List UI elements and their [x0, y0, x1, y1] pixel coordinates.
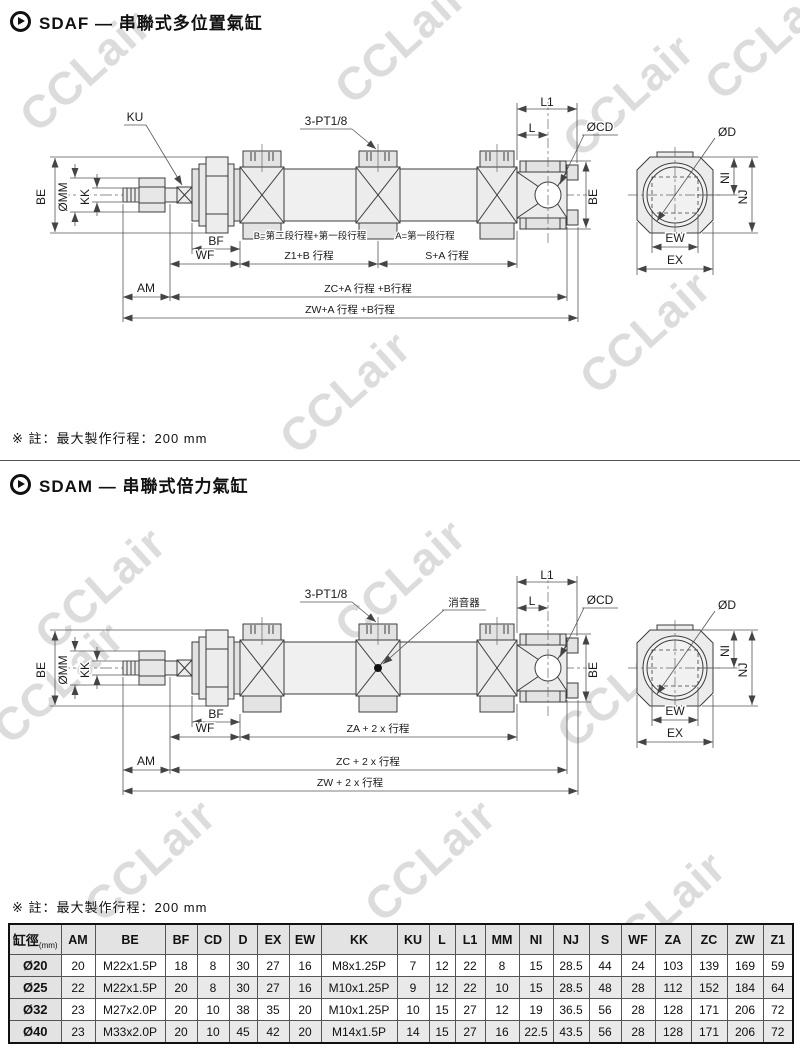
spec-cell: 139 [691, 955, 727, 977]
section-divider [0, 460, 800, 461]
section-bullet-icon [10, 474, 31, 495]
section1-note: ※ 註：最大製作行程：200 mm [12, 428, 207, 447]
dim-label-be-right: BE [586, 662, 600, 678]
col-header-nj: NJ [553, 924, 589, 955]
dim-label-mm: ØMM [56, 182, 70, 211]
dim-label-port: 3-PT1/8 [305, 114, 348, 128]
spec-cell: 43.5 [553, 1021, 589, 1044]
spec-cell: M22x1.5P [95, 977, 165, 999]
col-header-wf: WF [621, 924, 655, 955]
spec-cell: 27 [257, 955, 289, 977]
section2-note: ※ 註：最大製作行程：200 mm [12, 897, 207, 916]
col-header-za: ZA [655, 924, 691, 955]
spec-cell: 152 [691, 977, 727, 999]
spec-cell: 171 [691, 999, 727, 1021]
spec-cell: M33x2.0P [95, 1021, 165, 1044]
col-header-ew: EW [289, 924, 321, 955]
dim-label-z1b: Z1+B 行程 [284, 249, 334, 262]
spec-cell: 15 [429, 1021, 455, 1044]
spec-cell: 72 [763, 1021, 793, 1044]
dim-label-d: ØD [718, 598, 736, 612]
spec-cell: 24 [621, 955, 655, 977]
spec-cell: 10 [197, 999, 229, 1021]
spec-cell: 9 [397, 977, 429, 999]
dim-label-cd: ØCD [587, 593, 614, 607]
spec-cell: 16 [289, 955, 321, 977]
dim-label-l: L [529, 121, 536, 135]
spec-cell: 42 [257, 1021, 289, 1044]
dim-label-mm: ØMM [56, 655, 70, 684]
dim-label-wf: WF [196, 721, 215, 735]
col-header-zc: ZC [691, 924, 727, 955]
dim-label-nj: NJ [736, 190, 750, 205]
dim-label-ew: EW [665, 231, 685, 245]
spec-cell: 28 [621, 1021, 655, 1044]
section2-title-text: SDAM — 串聯式倍力氣缸 [39, 472, 249, 497]
spec-cell: M22x1.5P [95, 955, 165, 977]
col-header-ku: KU [397, 924, 429, 955]
spec-cell: 56 [589, 1021, 621, 1044]
spec-cell: 20 [165, 999, 197, 1021]
col-header-ni: NI [519, 924, 553, 955]
col-header-cd: CD [197, 924, 229, 955]
spec-cell: 15 [429, 999, 455, 1021]
spec-cell: 48 [589, 977, 621, 999]
dim-label-ku: KU [127, 110, 144, 124]
spec-cell: 23 [61, 1021, 95, 1044]
spec-cell: 22 [455, 977, 485, 999]
section2-title: SDAM — 串聯式倍力氣缸 [10, 472, 249, 497]
spec-cell: 23 [61, 999, 95, 1021]
section1-title-text: SDAF — 串聯式多位置氣缸 [39, 9, 263, 34]
col-header-bf: BF [165, 924, 197, 955]
stroke-note-a: A=第一段行程 [395, 230, 455, 242]
spec-cell: 59 [763, 955, 793, 977]
col-header-l1: L1 [455, 924, 485, 955]
col-header-l: L [429, 924, 455, 955]
spec-cell: 22.5 [519, 1021, 553, 1044]
spec-cell: 20 [289, 999, 321, 1021]
spec-cell: 14 [397, 1021, 429, 1044]
table-row: Ø2522M22x1.5P208302716M10x1.25P912221015… [9, 977, 793, 999]
spec-cell: 20 [165, 977, 197, 999]
spec-cell: 169 [727, 955, 763, 977]
spec-cell: 112 [655, 977, 691, 999]
watermark: CCLair [354, 787, 507, 932]
dim-label-be-right: BE [586, 189, 600, 205]
spec-cell: 45 [229, 1021, 257, 1044]
dim-label-zw: ZW+A 行程 +B行程 [305, 303, 395, 316]
spec-cell: 30 [229, 977, 257, 999]
spec-cell: 22 [455, 955, 485, 977]
spec-table: 缸徑(mm)AMBEBFCDDEXEWKKKULL1MMNINJSWFZAZCZ… [8, 923, 794, 1044]
dim-label-am: AM [137, 754, 155, 768]
spec-table-body: Ø2020M22x1.5P188302716M8x1.25P7122281528… [9, 955, 793, 1044]
spec-cell: 7 [397, 955, 429, 977]
spec-cell: 27 [455, 999, 485, 1021]
spec-cell: 15 [519, 955, 553, 977]
spec-cell: 8 [197, 977, 229, 999]
dim-label-cd: ØCD [587, 120, 614, 134]
sdam-diagram: 3-PT1/8 消音器 L1 L ØCD ØD BE ØMM KK BE NI … [0, 556, 800, 808]
spec-cell: 28 [621, 999, 655, 1021]
spec-cell: 72 [763, 999, 793, 1021]
spec-cell: 35 [257, 999, 289, 1021]
catalog-page: CCLair CCLair CCLair CCLair CCLair CCLai… [0, 0, 800, 1049]
dim-label-zc: ZC+A 行程 +B行程 [324, 282, 412, 295]
spec-cell: 44 [589, 955, 621, 977]
dim-label-za: ZA + 2 x 行程 [347, 722, 410, 735]
spec-cell: 16 [485, 1021, 519, 1044]
spec-table-header-row: 缸徑(mm)AMBEBFCDDEXEWKKKULL1MMNINJSWFZAZCZ… [9, 924, 793, 955]
dim-label-port: 3-PT1/8 [305, 587, 348, 601]
dim-label-ew: EW [665, 704, 685, 718]
spec-cell: M14x1.5P [321, 1021, 397, 1044]
dim-label-wf: WF [196, 248, 215, 262]
spec-cell: M8x1.25P [321, 955, 397, 977]
dim-label-zc: ZC + 2 x 行程 [336, 755, 400, 768]
section1-title: SDAF — 串聯式多位置氣缸 [10, 9, 263, 34]
table-row: Ø3223M27x2.0P2010383520M10x1.25P10152712… [9, 999, 793, 1021]
dim-label-be-left: BE [34, 189, 48, 205]
spec-cell: 20 [61, 955, 95, 977]
col-header-kk: KK [321, 924, 397, 955]
col-header-z1: Z1 [763, 924, 793, 955]
spec-cell: 27 [257, 977, 289, 999]
spec-cell: 28.5 [553, 955, 589, 977]
spec-cell: 20 [165, 1021, 197, 1044]
dim-label-ni: NI [718, 172, 732, 184]
spec-cell: 36.5 [553, 999, 589, 1021]
spec-cell: 28 [621, 977, 655, 999]
spec-cell: 12 [429, 955, 455, 977]
col-header-mm: MM [485, 924, 519, 955]
spec-cell: 19 [519, 999, 553, 1021]
spec-cell: M10x1.25P [321, 999, 397, 1021]
spec-cell: 20 [289, 1021, 321, 1044]
spec-cell: 10 [485, 977, 519, 999]
spec-cell: 8 [197, 955, 229, 977]
sdaf-diagram: KU 3-PT1/8 L1 L ØCD ØD BE ØMM KK BE NI N… [0, 88, 800, 340]
spec-cell: 15 [519, 977, 553, 999]
col-header-be: BE [95, 924, 165, 955]
col-header-dia: 缸徑(mm) [9, 924, 61, 955]
spec-cell: 28.5 [553, 977, 589, 999]
row-diameter: Ø25 [9, 977, 61, 999]
dim-label-am: AM [137, 281, 155, 295]
dim-label-bf: BF [208, 234, 223, 248]
spec-cell: M27x2.0P [95, 999, 165, 1021]
spec-cell: 12 [429, 977, 455, 999]
table-row: Ø2020M22x1.5P188302716M8x1.25P7122281528… [9, 955, 793, 977]
spec-cell: 10 [197, 1021, 229, 1044]
spec-cell: 8 [485, 955, 519, 977]
dim-label-l1: L1 [540, 568, 554, 582]
spec-cell: 128 [655, 999, 691, 1021]
spec-cell: 22 [61, 977, 95, 999]
row-diameter: Ø32 [9, 999, 61, 1021]
col-header-am: AM [61, 924, 95, 955]
spec-cell: 10 [397, 999, 429, 1021]
col-header-zw: ZW [727, 924, 763, 955]
dim-label-zw: ZW + 2 x 行程 [317, 776, 384, 789]
spec-cell: 38 [229, 999, 257, 1021]
table-row: Ø4023M33x2.0P2010454220M14x1.5P141527162… [9, 1021, 793, 1044]
dim-label-sa: S+A 行程 [425, 249, 469, 262]
spec-cell: 128 [655, 1021, 691, 1044]
dim-label-d: ØD [718, 125, 736, 139]
dim-label-kk: KK [78, 189, 92, 205]
spec-cell: 18 [165, 955, 197, 977]
dim-label-bf: BF [208, 707, 223, 721]
section-bullet-icon [10, 11, 31, 32]
spec-cell: 184 [727, 977, 763, 999]
row-diameter: Ø20 [9, 955, 61, 977]
spec-cell: 206 [727, 999, 763, 1021]
dim-label-be-left: BE [34, 662, 48, 678]
stroke-note-b: B=第二段行程+第一段行程 [254, 230, 367, 242]
dim-label-ex: EX [667, 726, 683, 740]
spec-cell: 206 [727, 1021, 763, 1044]
spec-cell: M10x1.25P [321, 977, 397, 999]
dim-label-ex: EX [667, 253, 683, 267]
spec-cell: 64 [763, 977, 793, 999]
col-header-s: S [589, 924, 621, 955]
spec-cell: 16 [289, 977, 321, 999]
dim-label-ni: NI [718, 645, 732, 657]
spec-cell: 103 [655, 955, 691, 977]
spec-cell: 12 [485, 999, 519, 1021]
col-header-d: D [229, 924, 257, 955]
spec-cell: 27 [455, 1021, 485, 1044]
spec-cell: 30 [229, 955, 257, 977]
spec-cell: 171 [691, 1021, 727, 1044]
spec-cell: 56 [589, 999, 621, 1021]
row-diameter: Ø40 [9, 1021, 61, 1044]
col-header-ex: EX [257, 924, 289, 955]
dim-label-l1: L1 [540, 95, 554, 109]
dim-label-muffler: 消音器 [448, 596, 480, 609]
dim-label-l: L [529, 594, 536, 608]
watermark: CCLair [269, 319, 422, 464]
muffler-dot [374, 664, 382, 672]
dim-label-nj: NJ [736, 663, 750, 678]
dim-label-kk: KK [78, 662, 92, 678]
